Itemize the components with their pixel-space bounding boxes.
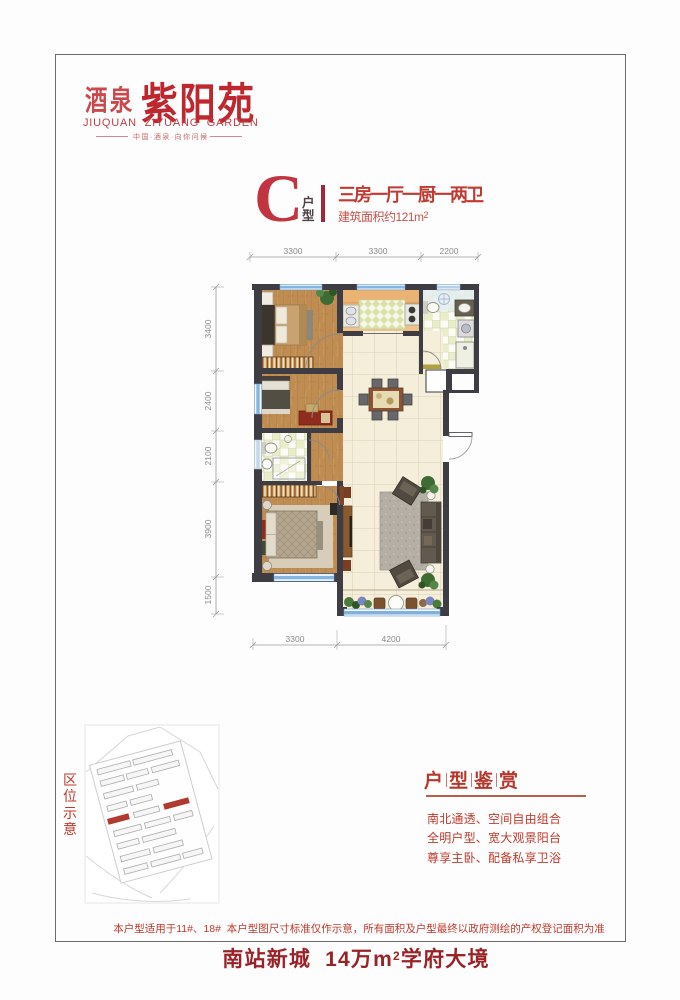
svg-text:2200: 2200 xyxy=(440,246,459,256)
svg-text:1500: 1500 xyxy=(203,585,213,604)
svg-text:2400: 2400 xyxy=(203,391,213,410)
svg-text:3300: 3300 xyxy=(284,246,303,256)
svg-text:3900: 3900 xyxy=(203,519,213,538)
svg-text:2100: 2100 xyxy=(203,446,213,465)
svg-text:3300: 3300 xyxy=(369,246,388,256)
svg-text:3400: 3400 xyxy=(203,319,213,338)
svg-text:3300: 3300 xyxy=(286,634,305,644)
svg-text:4200: 4200 xyxy=(382,634,401,644)
